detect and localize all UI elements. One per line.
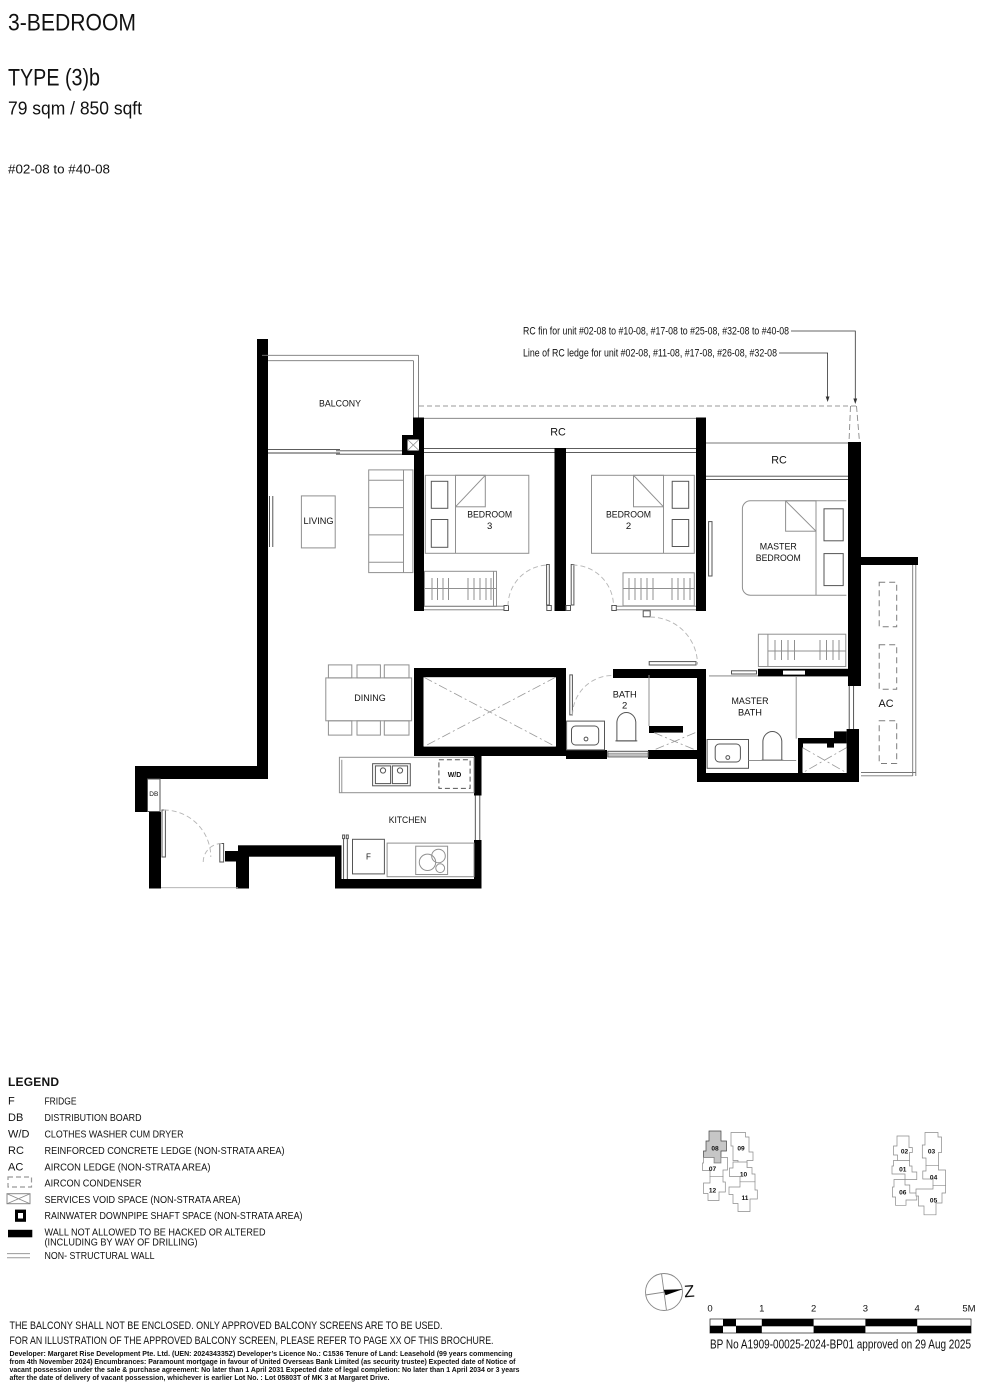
svg-text:01: 01 — [899, 1167, 907, 1174]
svg-text:DB: DB — [149, 791, 158, 798]
svg-text:#02-08 to #40-08: #02-08 to #40-08 — [8, 162, 110, 177]
svg-text:BATH: BATH — [738, 708, 762, 719]
svg-text:2: 2 — [622, 701, 627, 712]
svg-text:Line of RC ledge for unit #02-: Line of RC ledge for unit #02-08, #11-08… — [523, 348, 777, 360]
svg-text:BEDROOM: BEDROOM — [467, 510, 512, 521]
svg-text:03: 03 — [928, 1149, 936, 1156]
svg-text:FRIDGE: FRIDGE — [45, 1096, 77, 1108]
svg-text:10: 10 — [740, 1172, 748, 1179]
svg-text:REINFORCED CONCRETE LEDGE (NON: REINFORCED CONCRETE LEDGE (NON-STRATA AR… — [45, 1145, 285, 1157]
svg-text:AIRCON CONDENSER: AIRCON CONDENSER — [45, 1178, 142, 1190]
svg-text:(INCLUDING BY WAY OF DRILLING): (INCLUDING BY WAY OF DRILLING) — [45, 1236, 198, 1248]
svg-text:F: F — [366, 853, 371, 862]
svg-text:2: 2 — [811, 1304, 816, 1315]
svg-text:LEGEND: LEGEND — [8, 1075, 59, 1089]
svg-text:3: 3 — [863, 1304, 868, 1315]
svg-text:DB: DB — [8, 1112, 23, 1124]
svg-text:AIRCON LEDGE (NON-STRATA AREA): AIRCON LEDGE (NON-STRATA AREA) — [45, 1162, 211, 1174]
svg-text:F: F — [8, 1096, 15, 1108]
svg-text:THE BALCONY SHALL NOT BE ENCLO: THE BALCONY SHALL NOT BE ENCLOSED. ONLY … — [10, 1320, 443, 1332]
svg-text:TYPE (3)b: TYPE (3)b — [8, 65, 100, 92]
svg-text:3: 3 — [487, 521, 492, 532]
svg-text:2: 2 — [626, 521, 631, 532]
svg-text:0: 0 — [707, 1304, 712, 1315]
svg-text:AC: AC — [879, 698, 894, 710]
svg-text:05: 05 — [930, 1198, 938, 1205]
svg-text:KITCHEN: KITCHEN — [389, 815, 427, 826]
svg-text:W/D: W/D — [8, 1129, 29, 1141]
svg-text:RAINWATER DOWNPIPE SHAFT SPACE: RAINWATER DOWNPIPE SHAFT SPACE (NON-STRA… — [45, 1210, 303, 1222]
svg-text:NON- STRUCTURAL WALL: NON- STRUCTURAL WALL — [45, 1250, 155, 1262]
svg-text:W/D: W/D — [448, 772, 462, 779]
svg-text:3-BEDROOM: 3-BEDROOM — [8, 10, 136, 37]
svg-text:DISTRIBUTION BOARD: DISTRIBUTION BOARD — [45, 1112, 142, 1124]
svg-text:Z: Z — [683, 1282, 695, 1302]
svg-text:RC: RC — [8, 1145, 24, 1157]
svg-text:AC: AC — [8, 1162, 23, 1174]
svg-text:12: 12 — [709, 1188, 717, 1195]
svg-text:after the date of delivery of: after the date of delivery of vacant pos… — [10, 1373, 390, 1382]
svg-text:4: 4 — [915, 1304, 920, 1315]
svg-text:RC fin for unit #02-08 to #10-: RC fin for unit #02-08 to #10-08, #17-08… — [523, 326, 789, 338]
svg-text:04: 04 — [930, 1175, 938, 1182]
svg-text:CLOTHES WASHER CUM DRYER: CLOTHES WASHER CUM DRYER — [45, 1129, 184, 1141]
svg-text:LIVING: LIVING — [304, 516, 334, 527]
svg-text:11: 11 — [742, 1195, 749, 1202]
svg-text:RC: RC — [550, 427, 566, 439]
svg-text:BEDROOM: BEDROOM — [606, 510, 651, 521]
svg-text:08: 08 — [711, 1146, 719, 1153]
svg-text:BATH: BATH — [613, 690, 637, 701]
svg-text:FOR AN ILLUSTRATION OF THE APP: FOR AN ILLUSTRATION OF THE APPROVED BALC… — [10, 1335, 494, 1347]
svg-text:RC: RC — [771, 455, 787, 467]
svg-text:SERVICES VOID SPACE (NON-STRAT: SERVICES VOID SPACE (NON-STRATA AREA) — [45, 1194, 241, 1206]
svg-text:79 sqm / 850 sqft: 79 sqm / 850 sqft — [8, 98, 142, 119]
svg-text:MASTER: MASTER — [760, 542, 797, 553]
svg-text:1: 1 — [759, 1304, 764, 1315]
svg-text:07: 07 — [709, 1166, 717, 1173]
svg-text:MASTER: MASTER — [732, 696, 769, 707]
svg-text:09: 09 — [737, 1146, 745, 1153]
svg-text:06: 06 — [899, 1189, 907, 1196]
svg-text:5M: 5M — [962, 1304, 975, 1315]
svg-text:BP No A1909-00025-2024-BP01 ap: BP No A1909-00025-2024-BP01 approved on … — [710, 1337, 971, 1352]
svg-text:BALCONY: BALCONY — [319, 399, 362, 410]
svg-text:DINING: DINING — [354, 693, 386, 704]
svg-text:BEDROOM: BEDROOM — [756, 553, 801, 564]
svg-text:02: 02 — [901, 1149, 909, 1156]
